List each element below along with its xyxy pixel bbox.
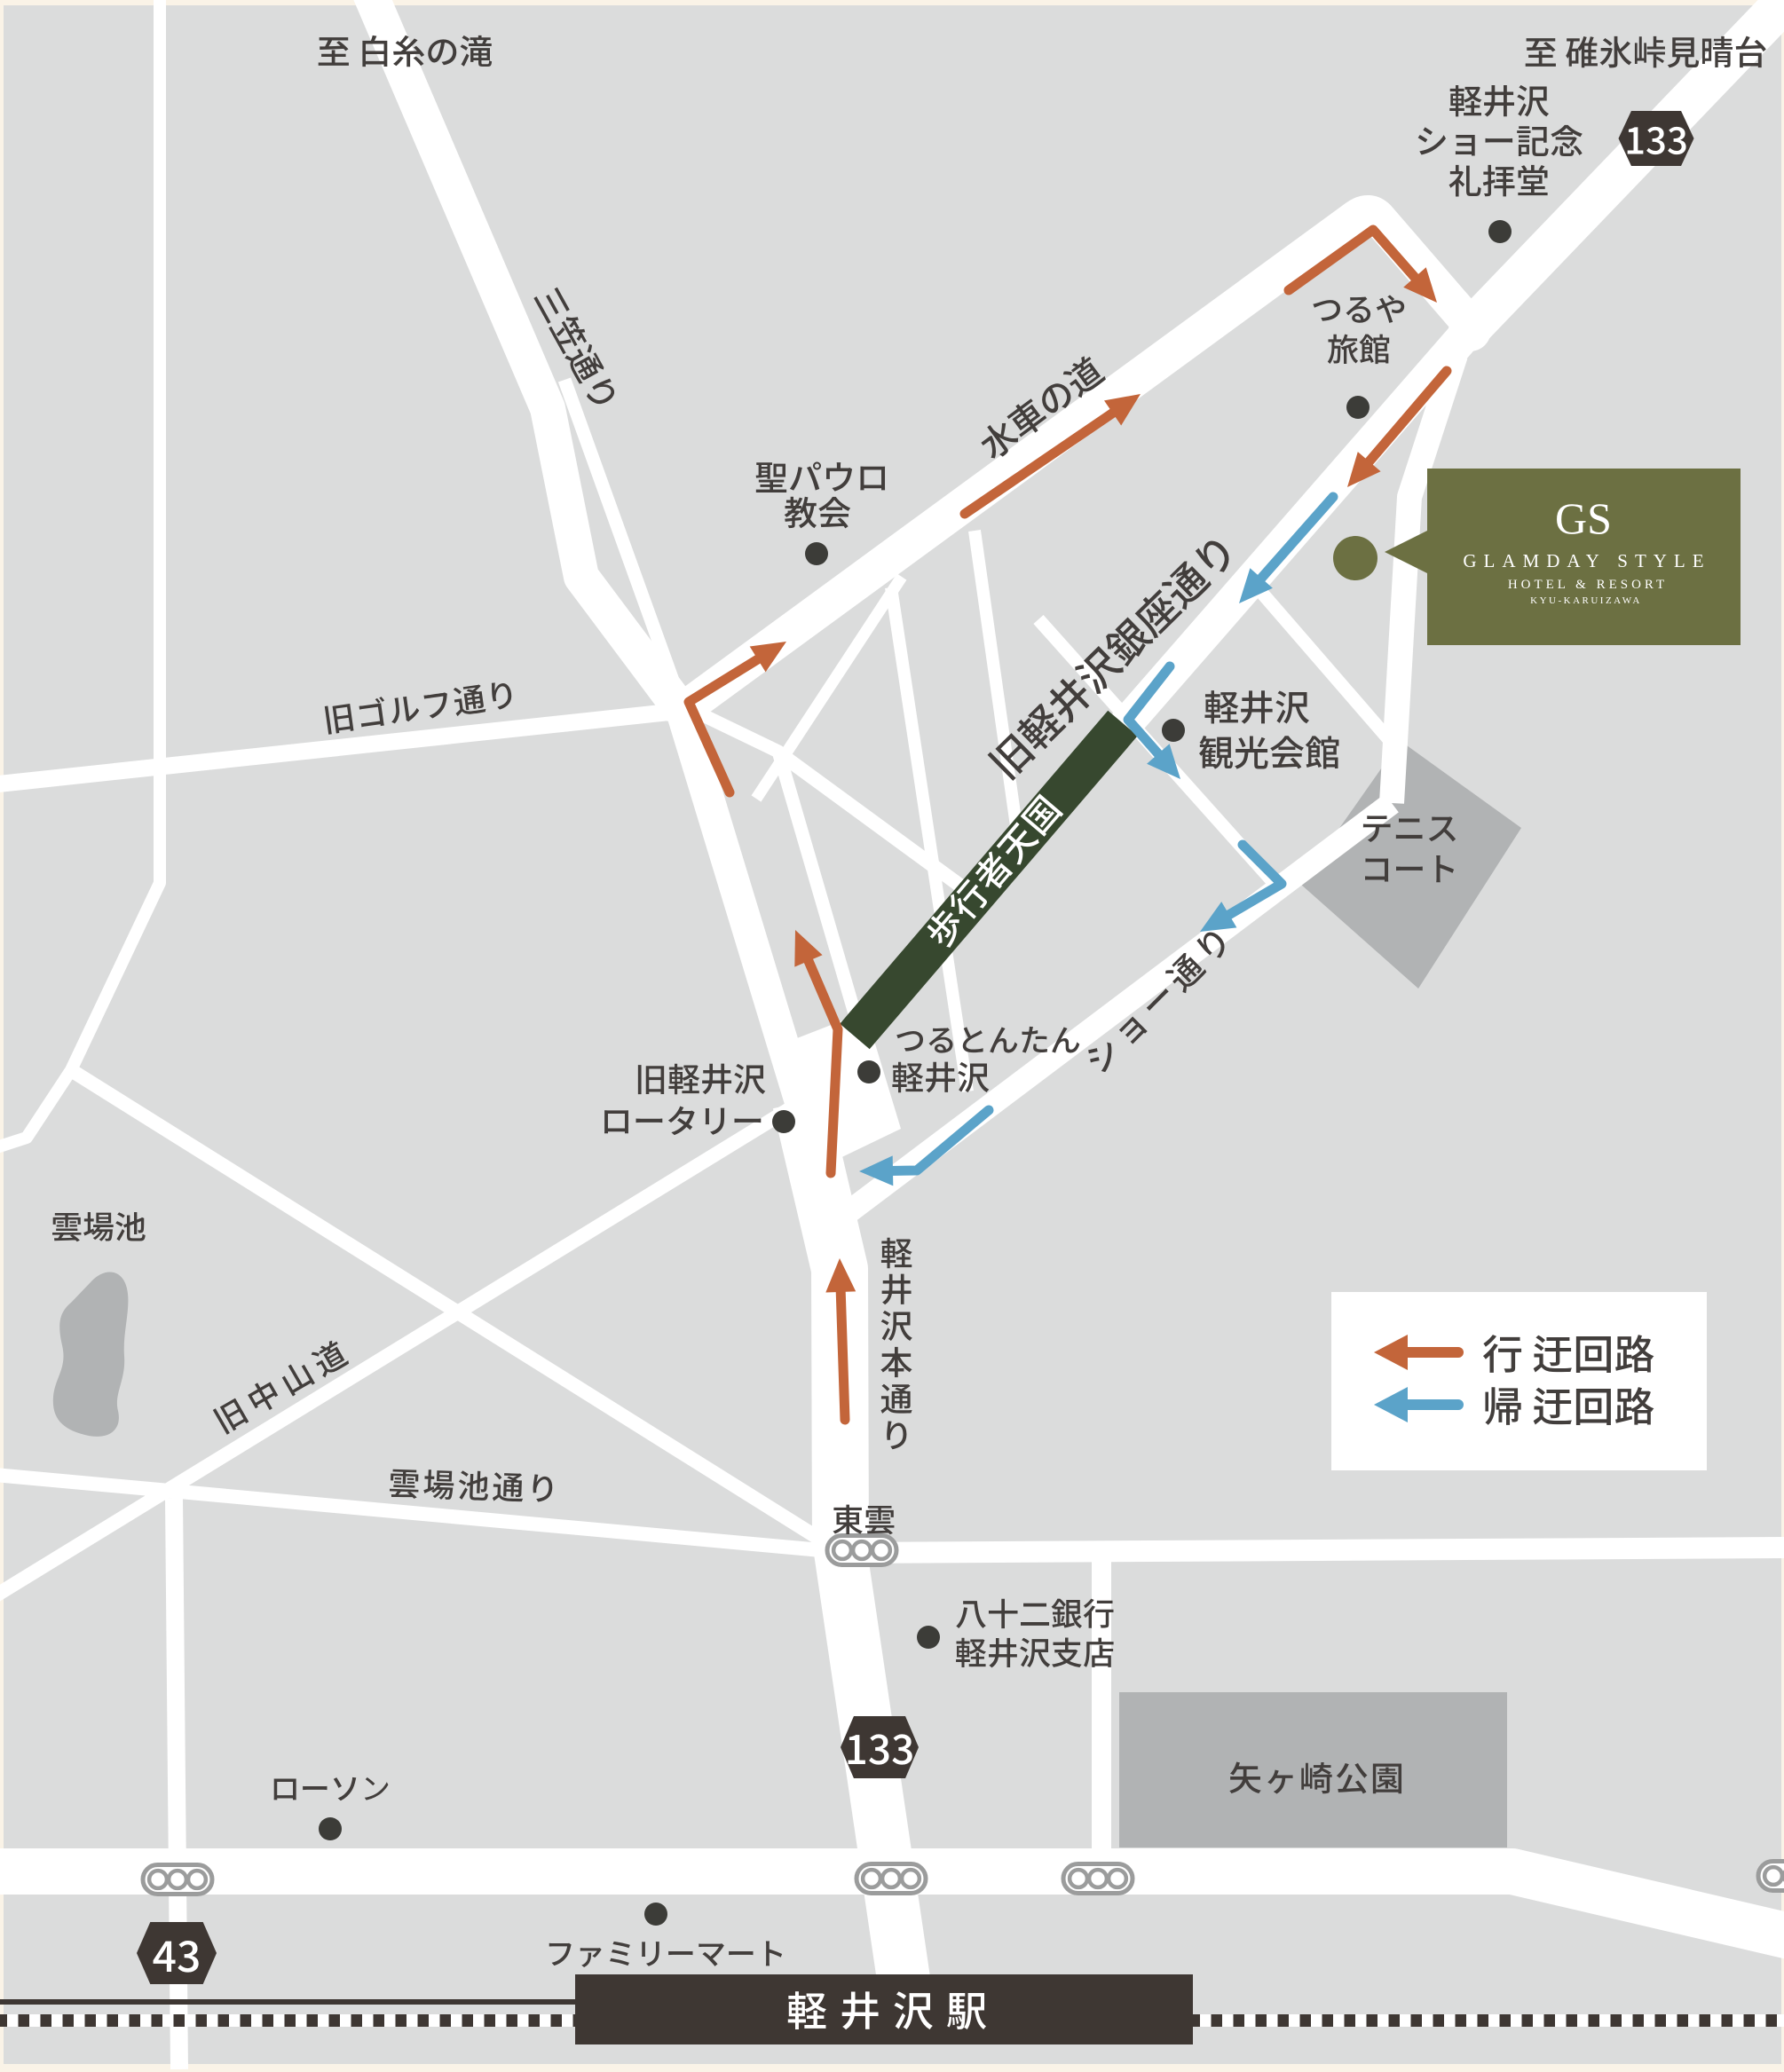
svg-text:軽井沢支店: 軽井沢支店 <box>955 1628 1115 1674</box>
svg-text:雲場池通り: 雲場池通り <box>388 1459 563 1511</box>
svg-text:KYU-KARUIZAWA: KYU-KARUIZAWA <box>1530 595 1642 606</box>
svg-text:軽井沢: 軽井沢 <box>1204 680 1310 731</box>
svg-text:雲場池: 雲場池 <box>51 1202 146 1249</box>
svg-text:43: 43 <box>153 1922 201 1984</box>
svg-text:東雲: 東雲 <box>832 1495 896 1541</box>
svg-text:GLAMDAY STYLE: GLAMDAY STYLE <box>1463 550 1710 571</box>
svg-text:至 白糸の滝: 至 白糸の滝 <box>317 25 493 74</box>
svg-text:帰 迂回路: 帰 迂回路 <box>1482 1375 1654 1434</box>
svg-text:軽井沢: 軽井沢 <box>891 1052 990 1099</box>
svg-text:行 迂回路: 行 迂回路 <box>1482 1323 1654 1382</box>
svg-text:旅館: 旅館 <box>1327 325 1391 371</box>
svg-text:観光会館: 観光会館 <box>1198 725 1340 776</box>
svg-text:ロータリー: ロータリー <box>600 1095 764 1143</box>
svg-text:133: 133 <box>1624 112 1688 166</box>
svg-text:GS: GS <box>1555 493 1612 543</box>
svg-text:軽井沢駅: 軽井沢駅 <box>786 1980 999 2038</box>
svg-text:り: り <box>880 1409 913 1457</box>
svg-text:至 碓氷峠見晴台: 至 碓氷峠見晴台 <box>1524 26 1768 75</box>
svg-text:ローソン: ローソン <box>270 1765 391 1808</box>
svg-text:HOTEL & RESORT: HOTEL & RESORT <box>1508 578 1668 592</box>
svg-text:旧軽井沢: 旧軽井沢 <box>635 1053 766 1101</box>
svg-text:矢ヶ崎公園: 矢ヶ崎公園 <box>1228 1752 1406 1800</box>
svg-text:礼拝堂: 礼拝堂 <box>1449 154 1550 203</box>
svg-text:ファミリーマート: ファミリーマート <box>545 1930 786 1974</box>
svg-text:コート: コート <box>1361 843 1459 891</box>
svg-text:133: 133 <box>845 1718 915 1777</box>
svg-text:教会: 教会 <box>784 486 851 535</box>
